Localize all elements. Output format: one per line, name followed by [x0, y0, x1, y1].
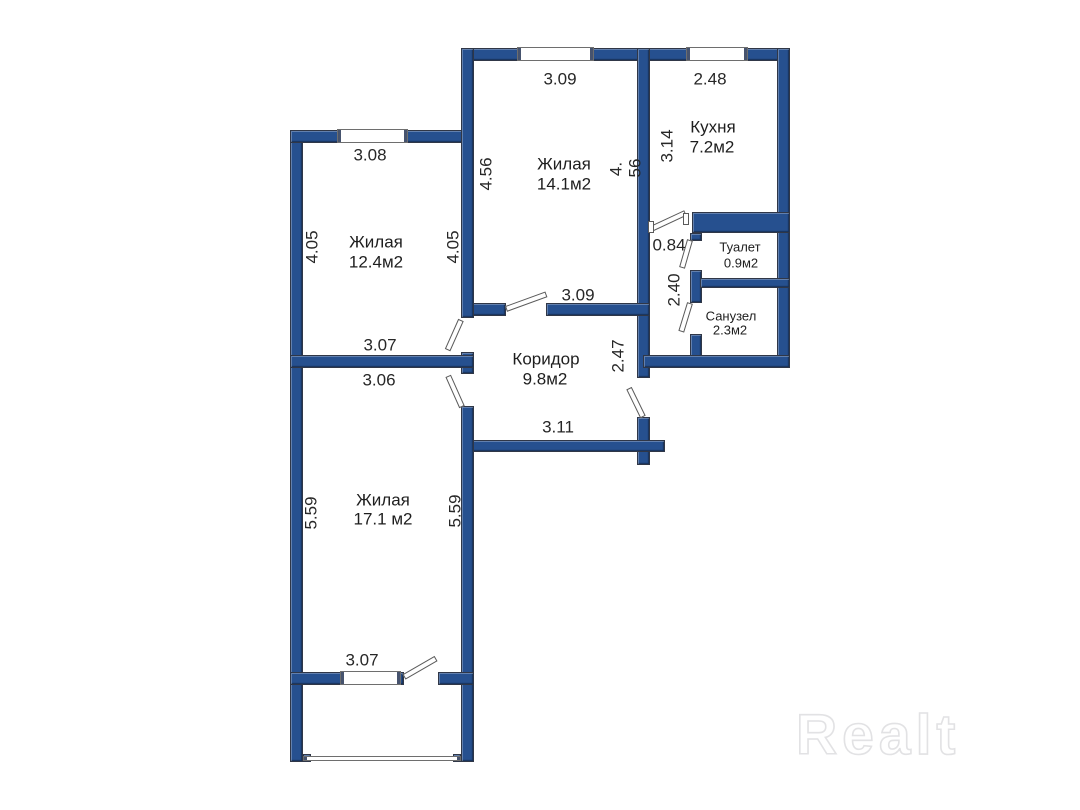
wall-rooms-divider [290, 355, 474, 368]
window-room-top [517, 47, 594, 61]
door-leaf-room-top [505, 291, 547, 311]
dim-kitchen-width: 2.48 [693, 71, 726, 88]
door-leaf-kitchen [650, 210, 687, 231]
dim-top-room-height-left: 4.56 [478, 157, 495, 190]
dim-top-room-width-top: 3.09 [543, 71, 576, 88]
room-area-bathroom: 2.3м2 [713, 324, 747, 337]
room-label-kitchen: Кухня [690, 119, 736, 136]
wall-right-outer [777, 48, 790, 368]
dim-bottom-room-height-right: 5.59 [447, 494, 464, 527]
dim-vestibule-width: 0.84 [652, 237, 685, 254]
wall-corridor-top-right [546, 303, 650, 316]
wall-kitchen-divider [637, 48, 650, 378]
wall-left-outer [290, 130, 303, 762]
dim-left-room-height-left: 4.05 [304, 230, 321, 263]
wall-center-vertical-lower [461, 406, 474, 762]
door-leaf-bathroom [678, 302, 693, 332]
door-leaf-room-bottom [445, 375, 464, 409]
wall-corridor-bottom [461, 440, 665, 452]
dim-bottom-room-height-left: 5.59 [303, 496, 320, 529]
wall-room-bottom-right [438, 672, 474, 685]
room-area-living-left: 12.4м2 [349, 254, 403, 271]
room-label-living-bottom: Жилая [356, 492, 410, 509]
room-label-bathroom: Санузел [706, 310, 757, 323]
dim-corridor-width-top: 3.09 [561, 287, 594, 304]
dim-corridor-width-bottom: 3.11 [542, 419, 574, 436]
balcony-rail [303, 756, 461, 761]
room-label-living-left: Жилая [349, 234, 403, 251]
realt-watermark: Realt [796, 702, 960, 768]
wall-bathroom-bottom [643, 355, 790, 368]
door-leaf-balcony [403, 656, 438, 680]
wall-center-vertical-upper [461, 48, 474, 318]
dim-left-room-width-bottom: 3.07 [363, 337, 396, 354]
room-label-toilet: Туалет [719, 241, 760, 254]
room-area-living-top: 14.1м2 [537, 176, 591, 193]
door-jamb-kitchen-left [648, 221, 654, 233]
door-jamb-kitchen-right [683, 213, 689, 225]
dim-bottom-room-width-top: 3.06 [362, 372, 395, 389]
wall-kitchen-bottom-block [692, 212, 790, 233]
dim-left-room-width-top: 3.08 [353, 147, 386, 164]
room-label-living-top: Жилая [537, 156, 591, 173]
dim-bottom-room-width-bottom: 3.07 [345, 652, 378, 669]
wall-toilet-divider [700, 278, 790, 288]
door-leaf-room-left [445, 319, 464, 352]
dim-vestibule-height: 2.40 [666, 273, 683, 306]
room-label-corridor: Коридор [512, 351, 579, 368]
window-room-bottom [340, 671, 401, 685]
door-leaf-entrance [626, 387, 645, 418]
room-area-toilet: 0.9м2 [724, 257, 758, 270]
room-area-living-bottom: 17.1 м2 [354, 511, 413, 528]
room-area-kitchen: 7.2м2 [690, 139, 735, 156]
window-room-left [337, 129, 408, 143]
dim-kitchen-height: 3.14 [659, 129, 676, 162]
dim-top-room-height-right-2: 56 [627, 159, 644, 178]
dim-corridor-height: 2.47 [610, 339, 627, 372]
dim-left-room-height-right: 4.05 [445, 230, 462, 263]
floor-plan: Жилая 14.1м2 Кухня 7.2м2 Туалет 0.9м2 Са… [0, 0, 1080, 810]
window-kitchen [686, 47, 748, 61]
dim-top-room-height-right-1: 4. [608, 162, 625, 176]
room-area-corridor: 9.8м2 [523, 371, 568, 388]
